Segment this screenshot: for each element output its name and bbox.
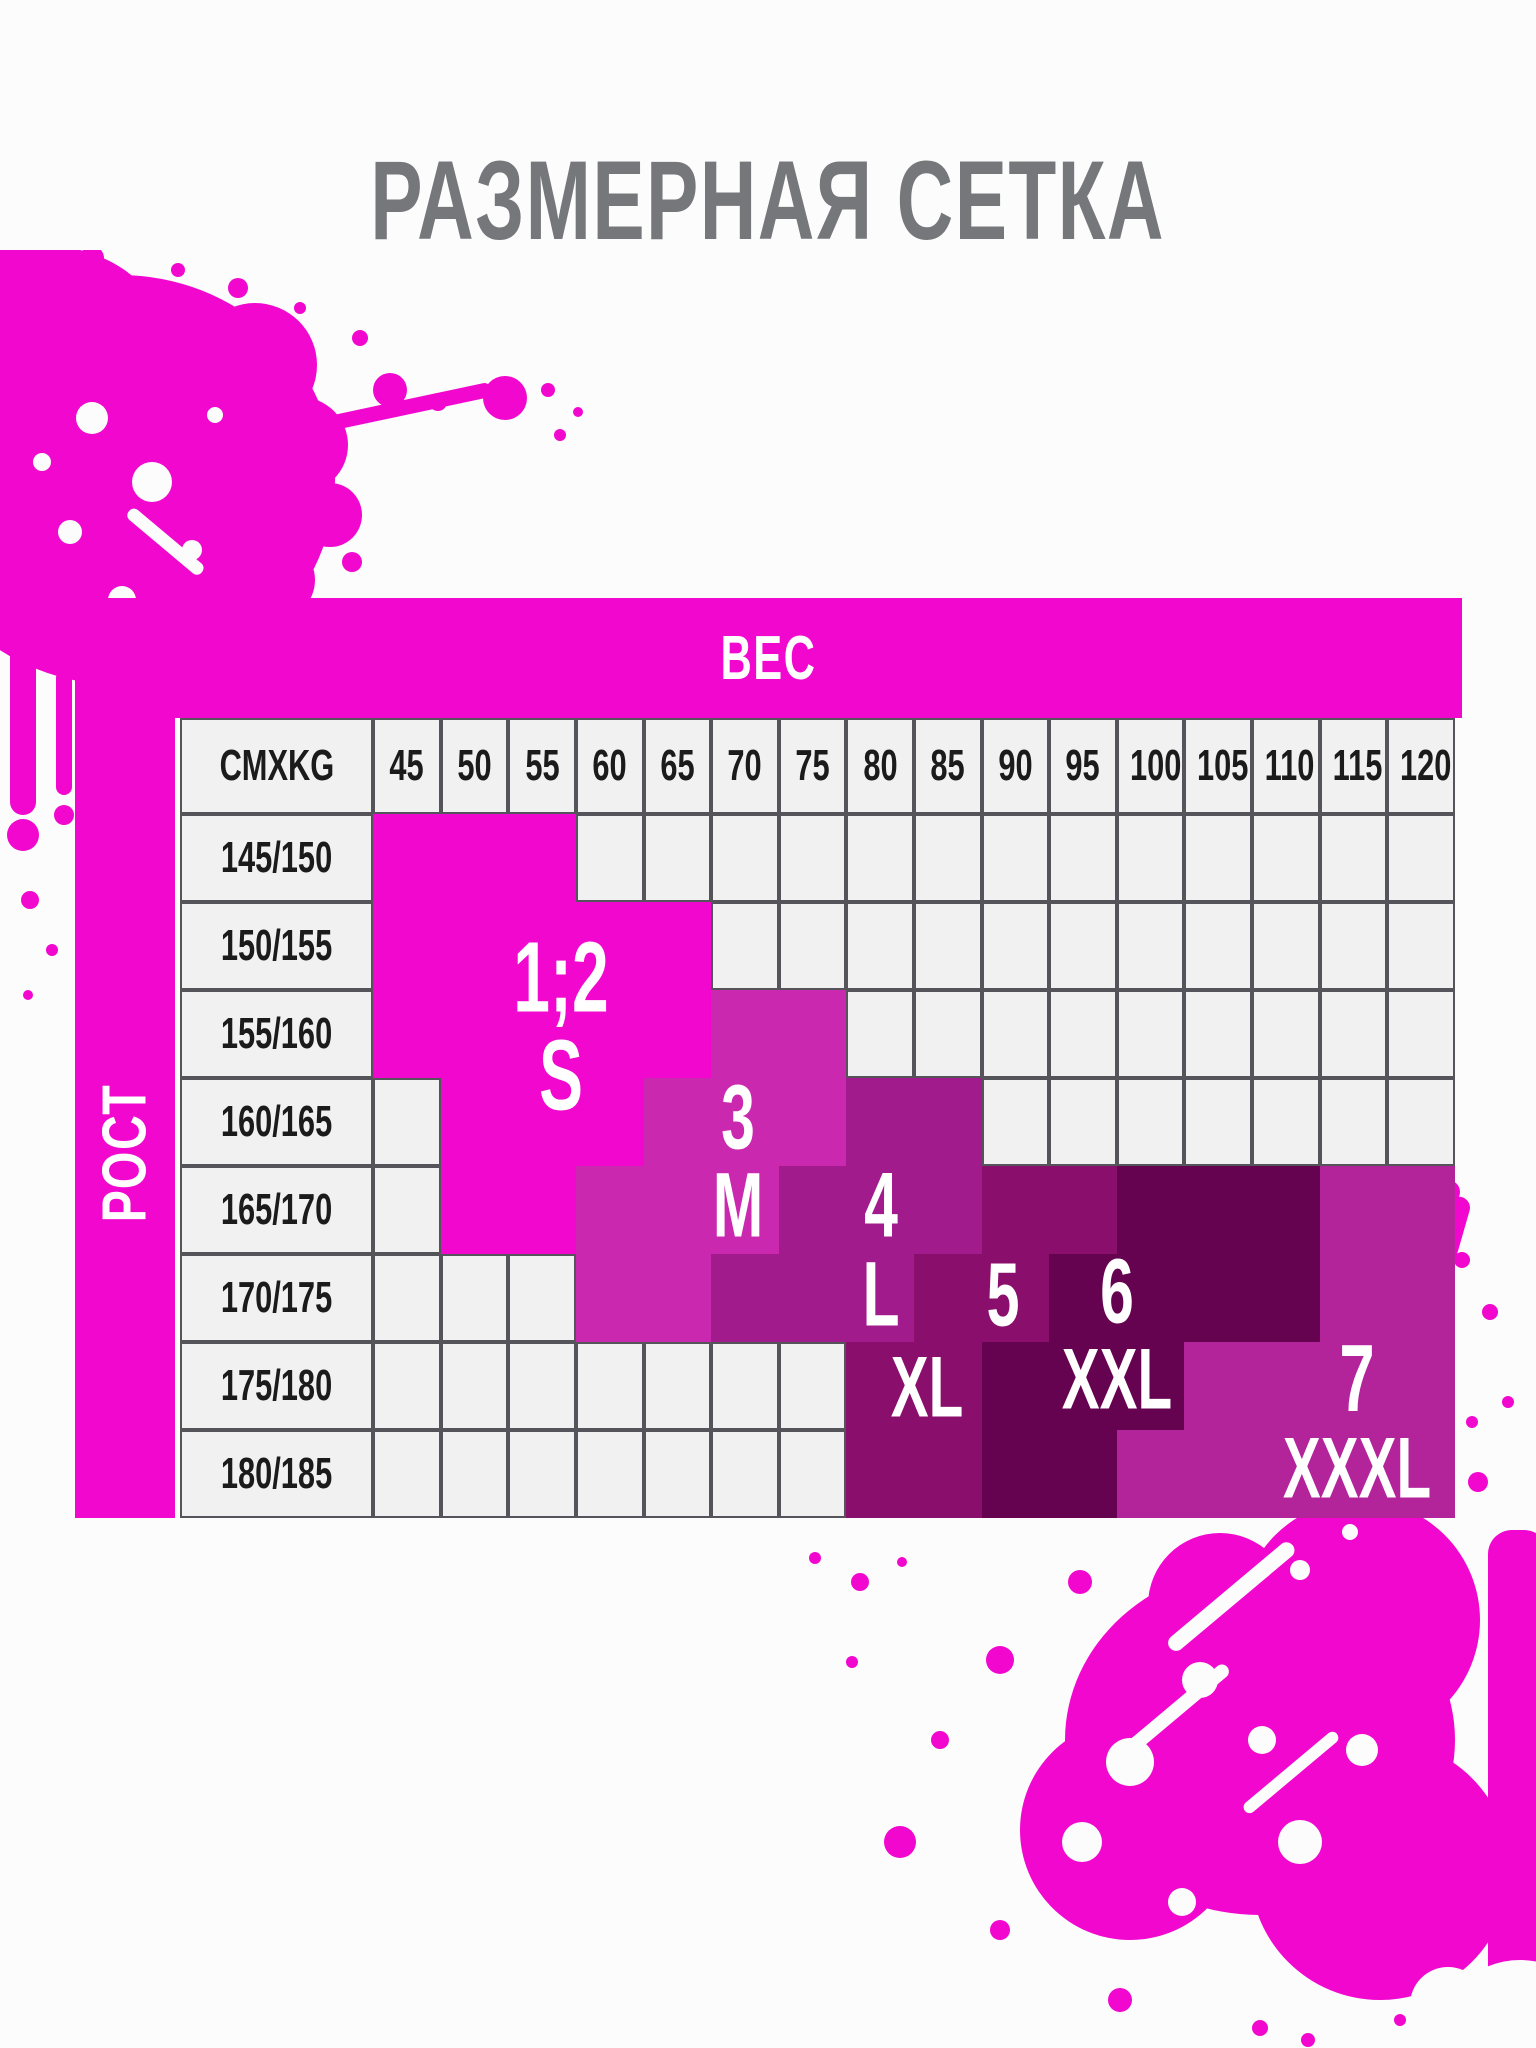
grid-cell [373, 1342, 441, 1430]
weight-header-cell: 90 [982, 718, 1050, 814]
zone-cell [914, 1254, 982, 1342]
grid-cell [508, 1254, 576, 1342]
zone-cell [576, 1166, 644, 1254]
height-header-cell: 160/165 [180, 1078, 373, 1166]
zone-size-label: 6 [1100, 1240, 1134, 1345]
height-header-cell-text: 155/160 [221, 1009, 332, 1059]
grid-cell [373, 1078, 441, 1166]
grid-cell [508, 1430, 576, 1518]
grid-cell [576, 1430, 644, 1518]
corner-cell-text: CMXKG [219, 741, 334, 791]
weight-header-cell-text: 85 [931, 741, 965, 791]
weight-header-cell-text: 50 [457, 741, 491, 791]
grid-cell [1252, 814, 1320, 902]
zone-cell [1252, 1342, 1320, 1430]
grid-cell [982, 990, 1050, 1078]
height-header-cell-text: 150/155 [221, 921, 332, 971]
grid-cell [1184, 902, 1252, 990]
zone-cell [1387, 1342, 1455, 1430]
zone-cell [508, 1166, 576, 1254]
grid-cell [779, 1430, 847, 1518]
zone-cell [779, 990, 847, 1078]
weight-header-cell: 110 [1252, 718, 1320, 814]
grid-cell [644, 814, 712, 902]
weight-header-cell: 45 [373, 718, 441, 814]
weight-header-cell-text: 120 [1400, 741, 1451, 791]
weight-header-cell: 55 [508, 718, 576, 814]
zone-cell [508, 814, 576, 902]
weight-header-cell-text: 90 [998, 741, 1032, 791]
weight-header-cell-text: 100 [1130, 741, 1181, 791]
weight-header-cell-text: 110 [1265, 741, 1315, 791]
grid-cell [846, 902, 914, 990]
zone-cell [982, 1342, 1050, 1430]
zone-cell [373, 990, 441, 1078]
grid-cell [1117, 1078, 1185, 1166]
zone-cell [779, 1166, 847, 1254]
zone-cell [779, 1078, 847, 1166]
grid-row: 160/165 [180, 1078, 1455, 1166]
grid-cell [1387, 1078, 1455, 1166]
grid-row: 150/155 [180, 902, 1455, 990]
grid-cell [373, 1254, 441, 1342]
zone-cell [644, 902, 712, 990]
zone-cell [914, 1430, 982, 1518]
zone-size-label: XXL [1062, 1331, 1172, 1430]
zone-cell [644, 1078, 712, 1166]
page-title-text: РАЗМЕРНАЯ СЕТКА [371, 136, 1166, 265]
zone-cell [576, 1254, 644, 1342]
height-header-cell-text: 170/175 [221, 1273, 332, 1323]
grid-cell [576, 814, 644, 902]
weight-header-cell: 85 [914, 718, 982, 814]
weight-header-cell-text: 45 [390, 741, 424, 791]
zone-cell [914, 1166, 982, 1254]
grid-cell [1387, 814, 1455, 902]
size-grid: CMXKG45505560657075808590951001051101151… [180, 718, 1455, 1518]
zone-cell [441, 990, 509, 1078]
weight-header-cell: 100 [1117, 718, 1185, 814]
zone-cell [1184, 1166, 1252, 1254]
zone-size-label: XXXL [1283, 1420, 1431, 1519]
grid-cell [1252, 902, 1320, 990]
grid-cell [1320, 814, 1388, 902]
grid-cell [982, 814, 1050, 902]
height-header-cell: 150/155 [180, 902, 373, 990]
grid-cell [711, 1430, 779, 1518]
grid-cell [644, 1342, 712, 1430]
weight-header-cell: 60 [576, 718, 644, 814]
grid-cell [1117, 990, 1185, 1078]
zone-cell [644, 1254, 712, 1342]
height-header-cell-text: 165/170 [221, 1185, 332, 1235]
grid-row: 145/150 [180, 814, 1455, 902]
grid-cell [846, 814, 914, 902]
grid-cell [441, 1342, 509, 1430]
zone-cell [779, 1254, 847, 1342]
height-header-cell-text: 160/165 [221, 1097, 332, 1147]
grid-cell [1320, 1078, 1388, 1166]
grid-cell [373, 1430, 441, 1518]
grid-cell [441, 1254, 509, 1342]
grid-cell [779, 1342, 847, 1430]
grid-cell [1320, 990, 1388, 1078]
zone-cell [1387, 1166, 1455, 1254]
grid-cell [982, 902, 1050, 990]
zone-cell [1320, 1166, 1388, 1254]
grid-cell [1049, 1078, 1117, 1166]
zone-cell [1252, 1254, 1320, 1342]
height-header-cell: 145/150 [180, 814, 373, 902]
grid-cell [1252, 990, 1320, 1078]
zone-cell [576, 1078, 644, 1166]
zone-cell [1184, 1430, 1252, 1518]
weight-axis-band: ВЕС [75, 598, 1462, 718]
grid-cell [576, 1342, 644, 1430]
grid-cell [982, 1078, 1050, 1166]
zone-cell [711, 1254, 779, 1342]
grid-row: 175/180 [180, 1342, 1455, 1430]
zone-cell [1184, 1342, 1252, 1430]
grid-row: 180/185 [180, 1430, 1455, 1518]
zone-cell [373, 902, 441, 990]
grid-cell [711, 1342, 779, 1430]
grid-cell [441, 1430, 509, 1518]
weight-header-cell: 80 [846, 718, 914, 814]
weight-header-cell-text: 55 [525, 741, 559, 791]
grid-cell [914, 814, 982, 902]
weight-header-cell-text: 70 [728, 741, 762, 791]
zone-size-label: M [713, 1154, 764, 1259]
weight-header-cell-text: 60 [593, 741, 627, 791]
weight-header-cell: 50 [441, 718, 509, 814]
grid-cell [1387, 902, 1455, 990]
grid-cell [711, 814, 779, 902]
grid-cell [1320, 902, 1388, 990]
zone-cell [373, 814, 441, 902]
grid-cell [1049, 902, 1117, 990]
grid-cell [711, 902, 779, 990]
grid-header-row: CMXKG45505560657075808590951001051101151… [180, 718, 1455, 814]
zone-cell [1387, 1254, 1455, 1342]
zone-cell [441, 1166, 509, 1254]
weight-header-cell-text: 65 [660, 741, 694, 791]
zone-size-label: 7 [1339, 1324, 1374, 1434]
grid-cell [1117, 814, 1185, 902]
height-header-cell-text: 145/150 [221, 833, 332, 883]
weight-header-cell: 95 [1049, 718, 1117, 814]
height-header-cell: 165/170 [180, 1166, 373, 1254]
zone-cell [846, 1430, 914, 1518]
zone-cell [1117, 1430, 1185, 1518]
zone-size-label: XL [891, 1339, 964, 1438]
height-header-cell: 175/180 [180, 1342, 373, 1430]
weight-header-cell: 70 [711, 718, 779, 814]
weight-axis-label: ВЕС [721, 623, 817, 694]
page-title: РАЗМЕРНАЯ СЕТКА [0, 136, 1536, 265]
grid-cell [779, 814, 847, 902]
grid-row: 165/170 [180, 1166, 1455, 1254]
grid-cell [644, 1430, 712, 1518]
zone-size-label: S [539, 1019, 583, 1134]
zone-cell [441, 814, 509, 902]
weight-header-cell: 115 [1320, 718, 1388, 814]
zone-size-label: L [862, 1243, 899, 1348]
height-header-cell: 155/160 [180, 990, 373, 1078]
grid-cell [914, 902, 982, 990]
grid-cell [1184, 990, 1252, 1078]
corner-cell: CMXKG [180, 718, 373, 814]
height-header-cell-text: 175/180 [221, 1361, 332, 1411]
weight-header-cell-text: 75 [795, 741, 829, 791]
height-header-cell-text: 180/185 [221, 1449, 332, 1499]
grid-row: 155/160 [180, 990, 1455, 1078]
grid-cell [373, 1166, 441, 1254]
grid-cell [1049, 814, 1117, 902]
grid-cell [914, 990, 982, 1078]
zone-cell [1252, 1166, 1320, 1254]
weight-header-cell-text: 80 [863, 741, 897, 791]
grid-cell [1184, 814, 1252, 902]
weight-header-cell: 105 [1184, 718, 1252, 814]
grid-cell [1387, 990, 1455, 1078]
height-axis-band [75, 598, 175, 1518]
weight-header-cell: 120 [1387, 718, 1455, 814]
grid-cell [846, 990, 914, 1078]
weight-header-cell: 75 [779, 718, 847, 814]
zone-cell [1184, 1254, 1252, 1342]
weight-header-cell-text: 105 [1197, 741, 1248, 791]
zone-cell [982, 1430, 1050, 1518]
size-chart: ВЕС РОСТ CMXKG45505560657075808590951001… [75, 598, 1462, 1518]
zone-cell [1049, 1430, 1117, 1518]
grid-cell [1117, 902, 1185, 990]
grid-cell [1252, 1078, 1320, 1166]
zone-cell [914, 1078, 982, 1166]
grid-cell [779, 902, 847, 990]
zone-cell [644, 990, 712, 1078]
zone-size-label: 5 [986, 1245, 1019, 1348]
height-header-cell: 170/175 [180, 1254, 373, 1342]
grid-row: 170/175 [180, 1254, 1455, 1342]
zone-cell [441, 902, 509, 990]
weight-header-cell-text: 95 [1066, 741, 1100, 791]
height-header-cell: 180/185 [180, 1430, 373, 1518]
zone-cell [982, 1166, 1050, 1254]
weight-header-cell-text: 115 [1332, 741, 1382, 791]
grid-cell [508, 1342, 576, 1430]
grid-cell [1184, 1078, 1252, 1166]
grid-cell [1049, 990, 1117, 1078]
zone-cell [644, 1166, 712, 1254]
zone-cell [441, 1078, 509, 1166]
weight-header-cell: 65 [644, 718, 712, 814]
height-axis-label: РОСТ [90, 1084, 161, 1223]
